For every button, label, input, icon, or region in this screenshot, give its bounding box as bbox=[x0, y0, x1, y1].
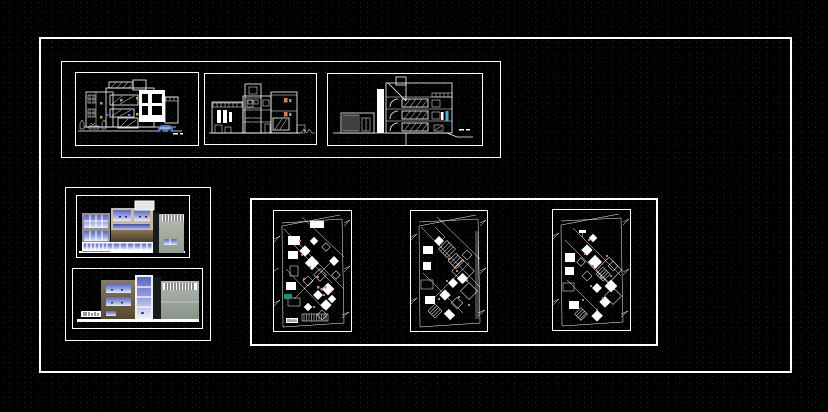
render-elevation-bottom-drawing bbox=[73, 269, 202, 328]
cad-canvas[interactable] bbox=[0, 0, 828, 412]
micro-label bbox=[81, 311, 101, 317]
elevation-side-drawing bbox=[205, 74, 316, 144]
elevation-side-frame[interactable] bbox=[204, 73, 317, 145]
floor-plan-1-drawing bbox=[274, 211, 351, 331]
elevation-front-drawing bbox=[76, 73, 198, 145]
floor-plan-3-drawing bbox=[553, 210, 630, 330]
render-elevation-top-frame[interactable] bbox=[76, 195, 190, 258]
floor-plan-2-drawing bbox=[411, 211, 487, 331]
section-stairs-frame[interactable] bbox=[327, 73, 483, 146]
floor-plan-3-frame[interactable] bbox=[552, 209, 631, 331]
render-elevation-top-drawing bbox=[77, 196, 189, 257]
elevation-front-frame[interactable] bbox=[75, 72, 199, 146]
section-stairs-drawing bbox=[328, 74, 482, 145]
render-elevation-bottom-frame[interactable] bbox=[72, 268, 203, 329]
floor-plan-2-frame[interactable] bbox=[410, 210, 488, 332]
north-mark bbox=[579, 230, 586, 237]
micro-label bbox=[286, 318, 298, 323]
floor-plan-1-frame[interactable] bbox=[273, 210, 352, 332]
